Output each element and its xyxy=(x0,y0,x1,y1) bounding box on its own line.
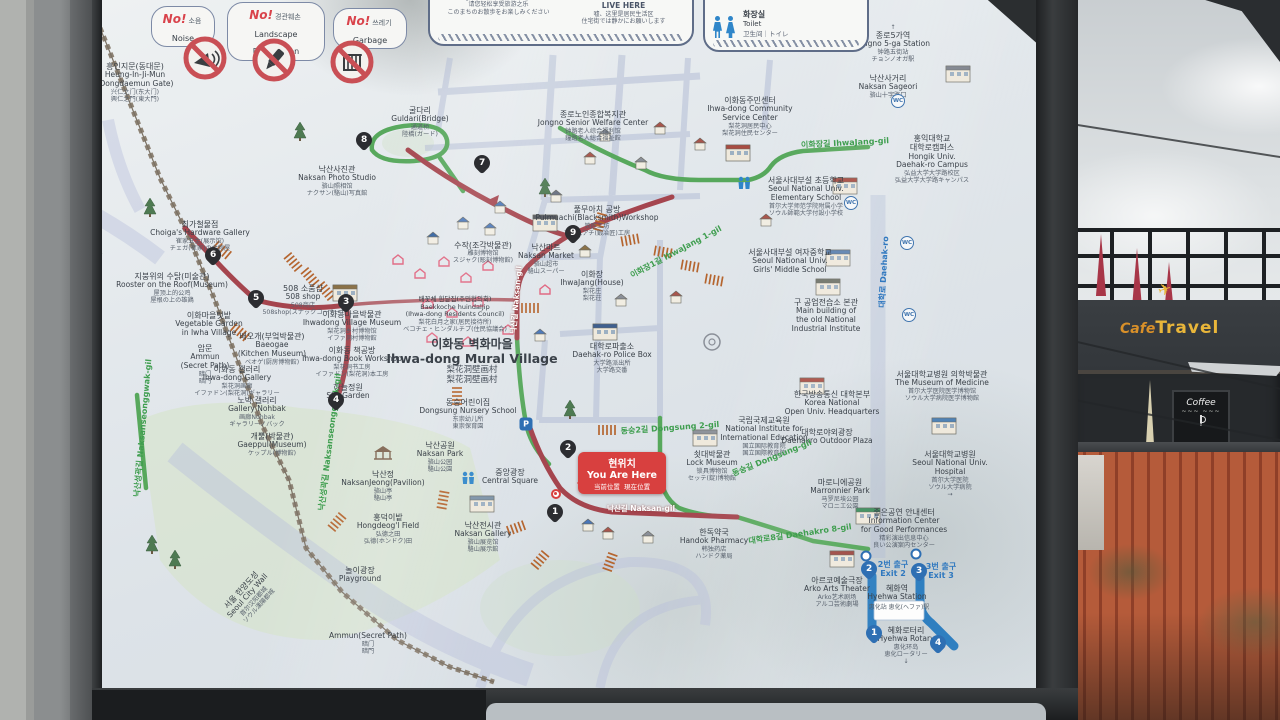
map-label: 동숭어린이집Dongsung Nursery School东崇幼儿所東崇保育園 xyxy=(419,398,516,430)
chalkboard-text: Coffee xyxy=(1186,398,1215,408)
map-label: 아르코예술극장Arko Arts TheaterArko艺术剧场アルコ芸術劇場 xyxy=(804,576,870,608)
compass-icon xyxy=(704,334,720,350)
cafe-travel-sign: CafeTravel xyxy=(1120,318,1219,338)
cafe-sign-word: Cafe xyxy=(1120,321,1155,337)
map-label: 한국방송통신 대학본부Korea NationalOpen Univ. Head… xyxy=(785,390,880,417)
map-label: 놀이광장Playground xyxy=(339,566,381,584)
map-label: 서울대학교병원 의학박물관The Museum of Medicine首尔大学医… xyxy=(895,370,989,402)
board-frame-right xyxy=(1036,0,1078,692)
map-label: 혜화역Hyehwa Station xyxy=(867,584,926,602)
map-label: 구 공업전습소 본관Main building ofthe old Nation… xyxy=(792,298,861,333)
map-label: 2번 출구Exit 2 xyxy=(878,560,908,579)
map-label: 낙산사진관Naksan Photo Studio骆山照相馆ナクサン(駱山)写真館 xyxy=(298,165,376,197)
map-label: 흥인지문(동대문)Heung-In-Ji-Mun(Dongdaemun Gate… xyxy=(97,62,174,103)
map-label: Ammun(Secret Path)暗门暗門 xyxy=(329,632,407,655)
map-label: 좋은공연 안내센터Information Centerfor Good Perf… xyxy=(861,508,947,549)
map-marker: P xyxy=(520,418,533,431)
hyehwa-station-cjk: 惠化站 恵化(ヘファ)駅 xyxy=(869,604,930,612)
chalkboard-sign: Coffee ~~~ ~~~ xyxy=(1172,390,1230,444)
yah-korean: 현위치 xyxy=(580,455,664,470)
map-label: 이화동주민센터Ihwa-dong CommunityService Center… xyxy=(707,96,792,137)
map-label: 마로니에공원Marronnier Park马罗尼埃公园マロニエ公園 xyxy=(810,478,869,510)
enjoy-travel-notice: ENJOY YOUR TRAVEL 请您轻松享受旅游之乐 このまちのお散歩をお楽… xyxy=(436,0,561,34)
map-label: 개뿔(박물관)Gaeppul(Museum)ケップル(博物館) xyxy=(237,432,306,457)
current-location-dot xyxy=(551,489,561,499)
map-label: 이화동 벽화마을Ihwa-dong Mural Village梨花洞壁画村梨花洞… xyxy=(386,338,557,386)
map-label: 노박 갤러리Gallery Nohbak画廊Nohbakギャラリーノバック xyxy=(228,396,286,428)
map-label: 굴다리Guldari(Bridge)通道桥陸橋(ガード) xyxy=(391,106,448,138)
prohibition-icon xyxy=(250,36,298,84)
map-marker: WC xyxy=(891,94,905,108)
map-label: 이화마을텃밭Vegetable Gardenin Iwha Village xyxy=(175,311,242,338)
prohibition-icon xyxy=(181,34,229,82)
toilet-icon xyxy=(713,16,735,38)
map-label: 홍익대학교대학로캠퍼스Hongik Univ.Daehak-ro Campus弘… xyxy=(895,134,969,184)
map-label: 서울사대부설 초등학교Seoul National Univ.Elementar… xyxy=(768,176,844,217)
map-label: 이화동 갤러리Ihwa-dong Gallery梨花洞画廊イファドン(梨花洞)ギ… xyxy=(194,365,279,397)
map-marker: WC xyxy=(844,196,858,210)
cafe-sign-word: Travel xyxy=(1155,318,1219,338)
map-label: 배오개(부엌박물관)Baeogae(Kitchen Museum)ベオゲ(厨房博… xyxy=(238,332,306,366)
map-marker: WC xyxy=(900,236,914,250)
chalkboard-scribble: ~~~ ~~~ xyxy=(1174,408,1228,415)
map-label: 홍덕이밭Hongdeog'l Field弘德之田弘德(ホンドク)田 xyxy=(357,513,419,545)
map-label: 대학로파출소Daehak-ro Police Box大学路派出所大学路交番 xyxy=(572,342,651,374)
photo-of-map-signboard: ✈ CafeTravel Coffee ~~~ ~~~ xyxy=(0,0,1280,720)
map-label: 낙산길 Naksan-gil xyxy=(607,505,675,514)
map-label: 종로노인종합복지관Jongno Senior Welfare Center钟路老… xyxy=(538,110,648,142)
prohibition-icon xyxy=(328,38,376,86)
map-label: 낙산사거리Naksan Sageori骆山十字路口 xyxy=(859,74,918,99)
map-label: 3번 출구Exit 3 xyxy=(926,562,956,581)
map-label: 수작(조각박물관)雕刻博物馆スジャク(彫刻博物館) xyxy=(453,241,513,265)
map-label: 한독약국Handok Pharmacy韩独药店ハンドク薬局 xyxy=(680,528,748,560)
etiquette-notice-box: ENJOY YOUR TRAVEL 请您轻松享受旅游之乐 このまちのお散歩をお楽… xyxy=(428,0,694,46)
map-label: 이화장IhwaJang(House)梨花庄梨花荘 xyxy=(560,270,623,302)
map-label: 서울사대부설 여자중학교Seoul National Univ.Girls' M… xyxy=(748,248,832,275)
you-are-here-badge: 현위치 You Are Here 当前位置 現在位置 xyxy=(578,452,666,494)
yah-cjk: 当前位置 現在位置 xyxy=(580,481,664,491)
post-shadow xyxy=(60,0,92,720)
map-marker: WC xyxy=(902,308,916,322)
map-label: 낙산공원Naksan Park骆山公园駱山公園 xyxy=(417,441,463,473)
map-label: 배꽃체 흰달집(주민협의회)Baekkoche huindalJip(Ihwa-… xyxy=(403,296,507,333)
map-label: 서울대학교병원Seoul National Univ.Hospital首尔大学医… xyxy=(912,450,987,498)
be-quiet-notice: PLEASE BE QUIET! PEOPLE LIVE HERE 嘘、这里是居… xyxy=(561,0,686,34)
map-marker xyxy=(861,551,872,562)
yah-english: You Are Here xyxy=(580,470,664,481)
map-label: 중앙광장Central Square xyxy=(482,468,538,486)
lower-panel xyxy=(486,703,1046,720)
map-label: 혜화로터리Hyehwa Rotary惠化环岛恵化ロータリー↓ xyxy=(877,626,934,666)
map-label: 낙산전시관Naksan Gallery骆山展览馆駱山展示館 xyxy=(455,521,512,553)
map-label: 최가철물점Choiga's Hardware Gallery崔家五金(展示馆)チ… xyxy=(150,220,250,252)
map-label: 지붕위의 수탉(미술관)Rooster on the Roof(Museum)屋… xyxy=(116,272,228,304)
toilet-notice-box: 화장실 Toilet 卫生间｜トイレ xyxy=(703,0,869,52)
map-label: 낙산정NaksanJeong(Pavilion)骆山亭駱山亭 xyxy=(341,470,424,502)
map-marker xyxy=(911,549,922,560)
map-label: 풀무아치 공방Pulmuachi(Blacksmith)Workshop铁匠工坊… xyxy=(536,205,659,237)
